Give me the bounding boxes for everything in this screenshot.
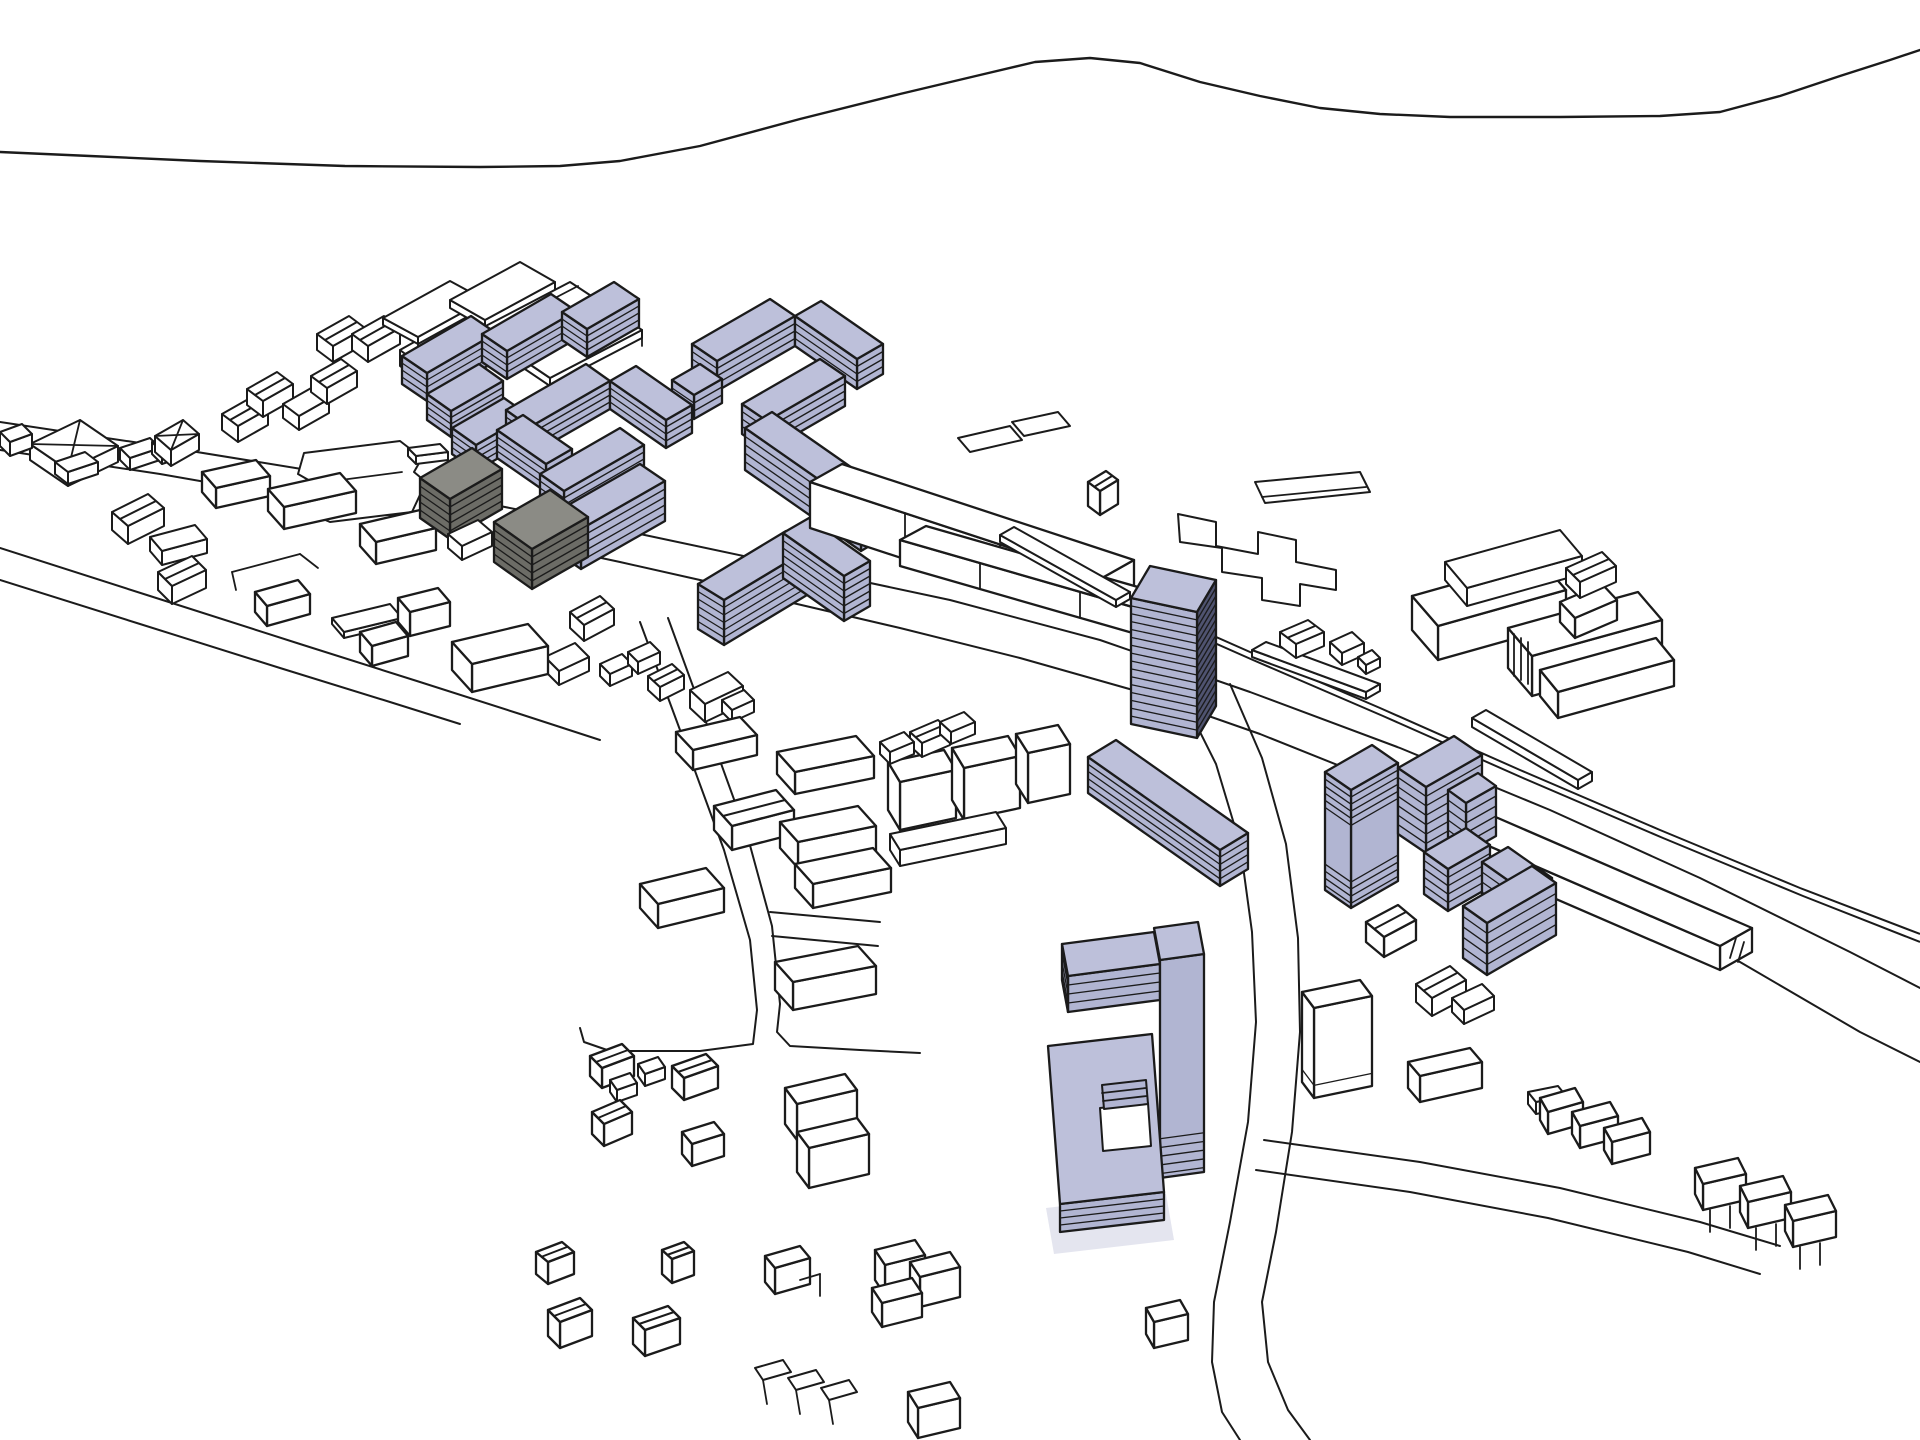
proposed-mid-slab <box>1325 745 1398 908</box>
site-axonometric-drawing <box>0 0 1920 1440</box>
big-box-south <box>1302 980 1372 1098</box>
tall-white-slab-3-wall-0 <box>1028 744 1070 803</box>
proposed-tower <box>1131 566 1216 738</box>
tall-white-slab-2 <box>952 736 1020 820</box>
proposed-court-hole-footprint <box>1100 1103 1151 1151</box>
bottom-row-house-3 <box>872 1278 922 1327</box>
proposed-bottom-right-bar-roof <box>1154 922 1204 960</box>
proposed-bottom-right-bar <box>1154 922 1204 1178</box>
box-bottom-edge <box>908 1382 960 1438</box>
proposed-court-inner-step <box>1102 1080 1148 1109</box>
tall-white-slab-1 <box>888 750 956 830</box>
big-box-south-wall-0 <box>1314 996 1372 1098</box>
factory-annex-bar <box>408 444 448 464</box>
box-bottom-right <box>1146 1300 1188 1348</box>
cottage-wire-2 <box>662 1242 694 1283</box>
house-left-6 <box>398 588 450 636</box>
proposed-court-inner-step-footprint <box>1102 1080 1148 1109</box>
proposed-court-hole <box>1100 1103 1151 1151</box>
south-big-building-b <box>797 1118 869 1188</box>
diagram-canvas <box>0 0 1920 1440</box>
tall-white-slab-3 <box>1016 725 1070 803</box>
proposed-bottom-upper-bar <box>1062 932 1160 1012</box>
